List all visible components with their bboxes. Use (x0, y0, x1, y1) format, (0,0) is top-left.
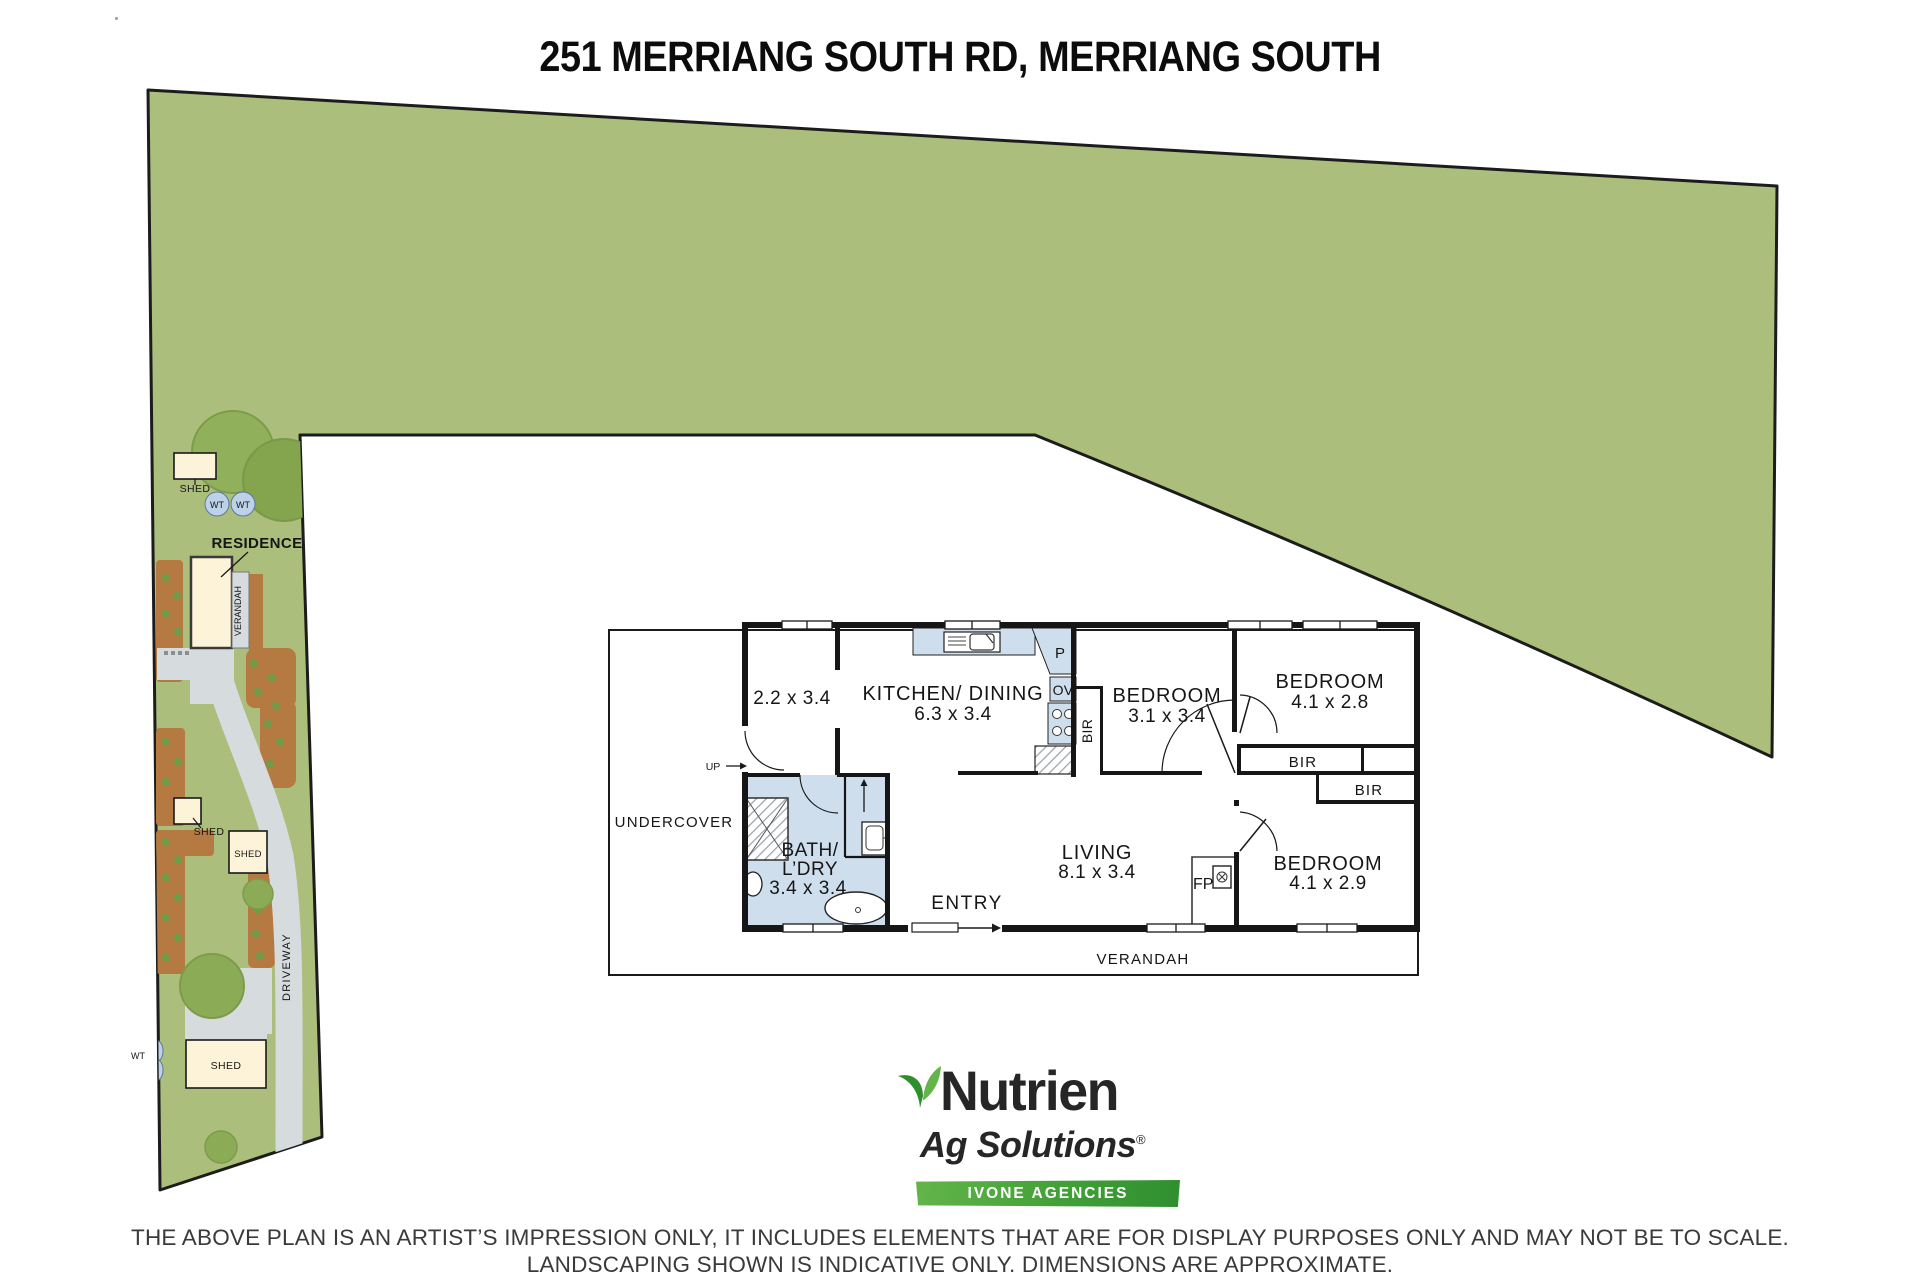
floorplan-page: 251 MERRIANG SOUTH RD, MERRIANG SOUTH (0, 0, 1920, 1279)
up-label: UP (706, 761, 721, 773)
water-tank-1-label: WT (210, 500, 224, 510)
disclaimer-line-2: LANDSCAPING SHOWN IS INDICATIVE ONLY. DI… (0, 1251, 1920, 1278)
agency-banner: IVONE AGENCIES (916, 1180, 1180, 1207)
residence-building (191, 557, 232, 648)
bedroom1-dims: 3.1 x 3.4 (1128, 706, 1205, 727)
water-tank-3a (149, 1040, 163, 1062)
wood-heater (1213, 866, 1231, 888)
nutrien-leaf-icon (896, 1060, 942, 1110)
flue-block (1035, 746, 1075, 774)
brand-subtitle: Ag Solutions® (920, 1124, 1145, 1166)
shed-3-label: SHED (234, 849, 262, 860)
brand-row: Nutrien (896, 1058, 1296, 1122)
driveway-label: DRIVEWAY (281, 933, 293, 1001)
entry-label: ENTRY (931, 893, 1003, 914)
water-tank-2-label: WT (236, 500, 250, 510)
disclaimer-line-1: THE ABOVE PLAN IS AN ARTIST’S IMPRESSION… (0, 1224, 1920, 1251)
bedroom2-dims: 4.1 x 2.8 (1291, 692, 1368, 713)
living-dims: 8.1 x 3.4 (1058, 862, 1135, 883)
bir-label-1: BIR (1289, 754, 1318, 771)
vanity (862, 822, 889, 855)
shed-2 (174, 798, 201, 824)
brand-name: Nutrien (940, 1058, 1118, 1123)
bedroom3-name: BEDROOM (1274, 853, 1383, 875)
bedroom1-name: BEDROOM (1113, 685, 1222, 707)
undercover-label: UNDERCOVER (615, 814, 734, 831)
bir-vertical-label: BIR (1079, 719, 1095, 743)
shed-1-label: SHED (180, 483, 211, 495)
site-verandah-label: VERANDAH (233, 586, 243, 636)
kitchen-sink (944, 632, 1000, 652)
pantry-label: P (1055, 645, 1065, 662)
bath-name-2: L’DRY (782, 859, 838, 880)
kitchen-dims: 6.3 x 3.4 (914, 704, 991, 725)
wt-leader (145, 1052, 151, 1056)
agency-logo-block: Nutrien Ag Solutions® IVONE AGENCIES (896, 1058, 1296, 1122)
living-name: LIVING (1062, 842, 1132, 864)
residence-label: RESIDENCE (211, 535, 302, 552)
bedroom2-name: BEDROOM (1276, 671, 1385, 693)
water-tank-3b (149, 1059, 163, 1081)
disclaimer: THE ABOVE PLAN IS AN ARTIST’S IMPRESSION… (0, 1224, 1920, 1278)
kitchen-name: KITCHEN/ DINING (863, 683, 1044, 705)
bath-dims: 3.4 x 3.4 (769, 878, 846, 899)
brand-subtitle-text: Ag Solutions (920, 1124, 1136, 1165)
bath-name-1: BATH/ (781, 840, 838, 861)
water-tank-3-label: WT (131, 1051, 145, 1061)
bir-label-2: BIR (1355, 782, 1384, 799)
shed-4-label: SHED (211, 1060, 242, 1072)
fireplace-label: FP (1193, 876, 1213, 893)
oven-label: OV (1053, 682, 1074, 698)
registered-mark: ® (1136, 1132, 1145, 1147)
shed-2-label: SHED (194, 826, 225, 838)
shed-1 (174, 453, 216, 479)
plan-verandah-label: VERANDAH (1097, 951, 1190, 968)
bedroom3-dims: 4.1 x 2.9 (1289, 873, 1366, 894)
entry-door-sill (912, 923, 958, 932)
room-small-dims: 2.2 x 3.4 (753, 688, 830, 709)
